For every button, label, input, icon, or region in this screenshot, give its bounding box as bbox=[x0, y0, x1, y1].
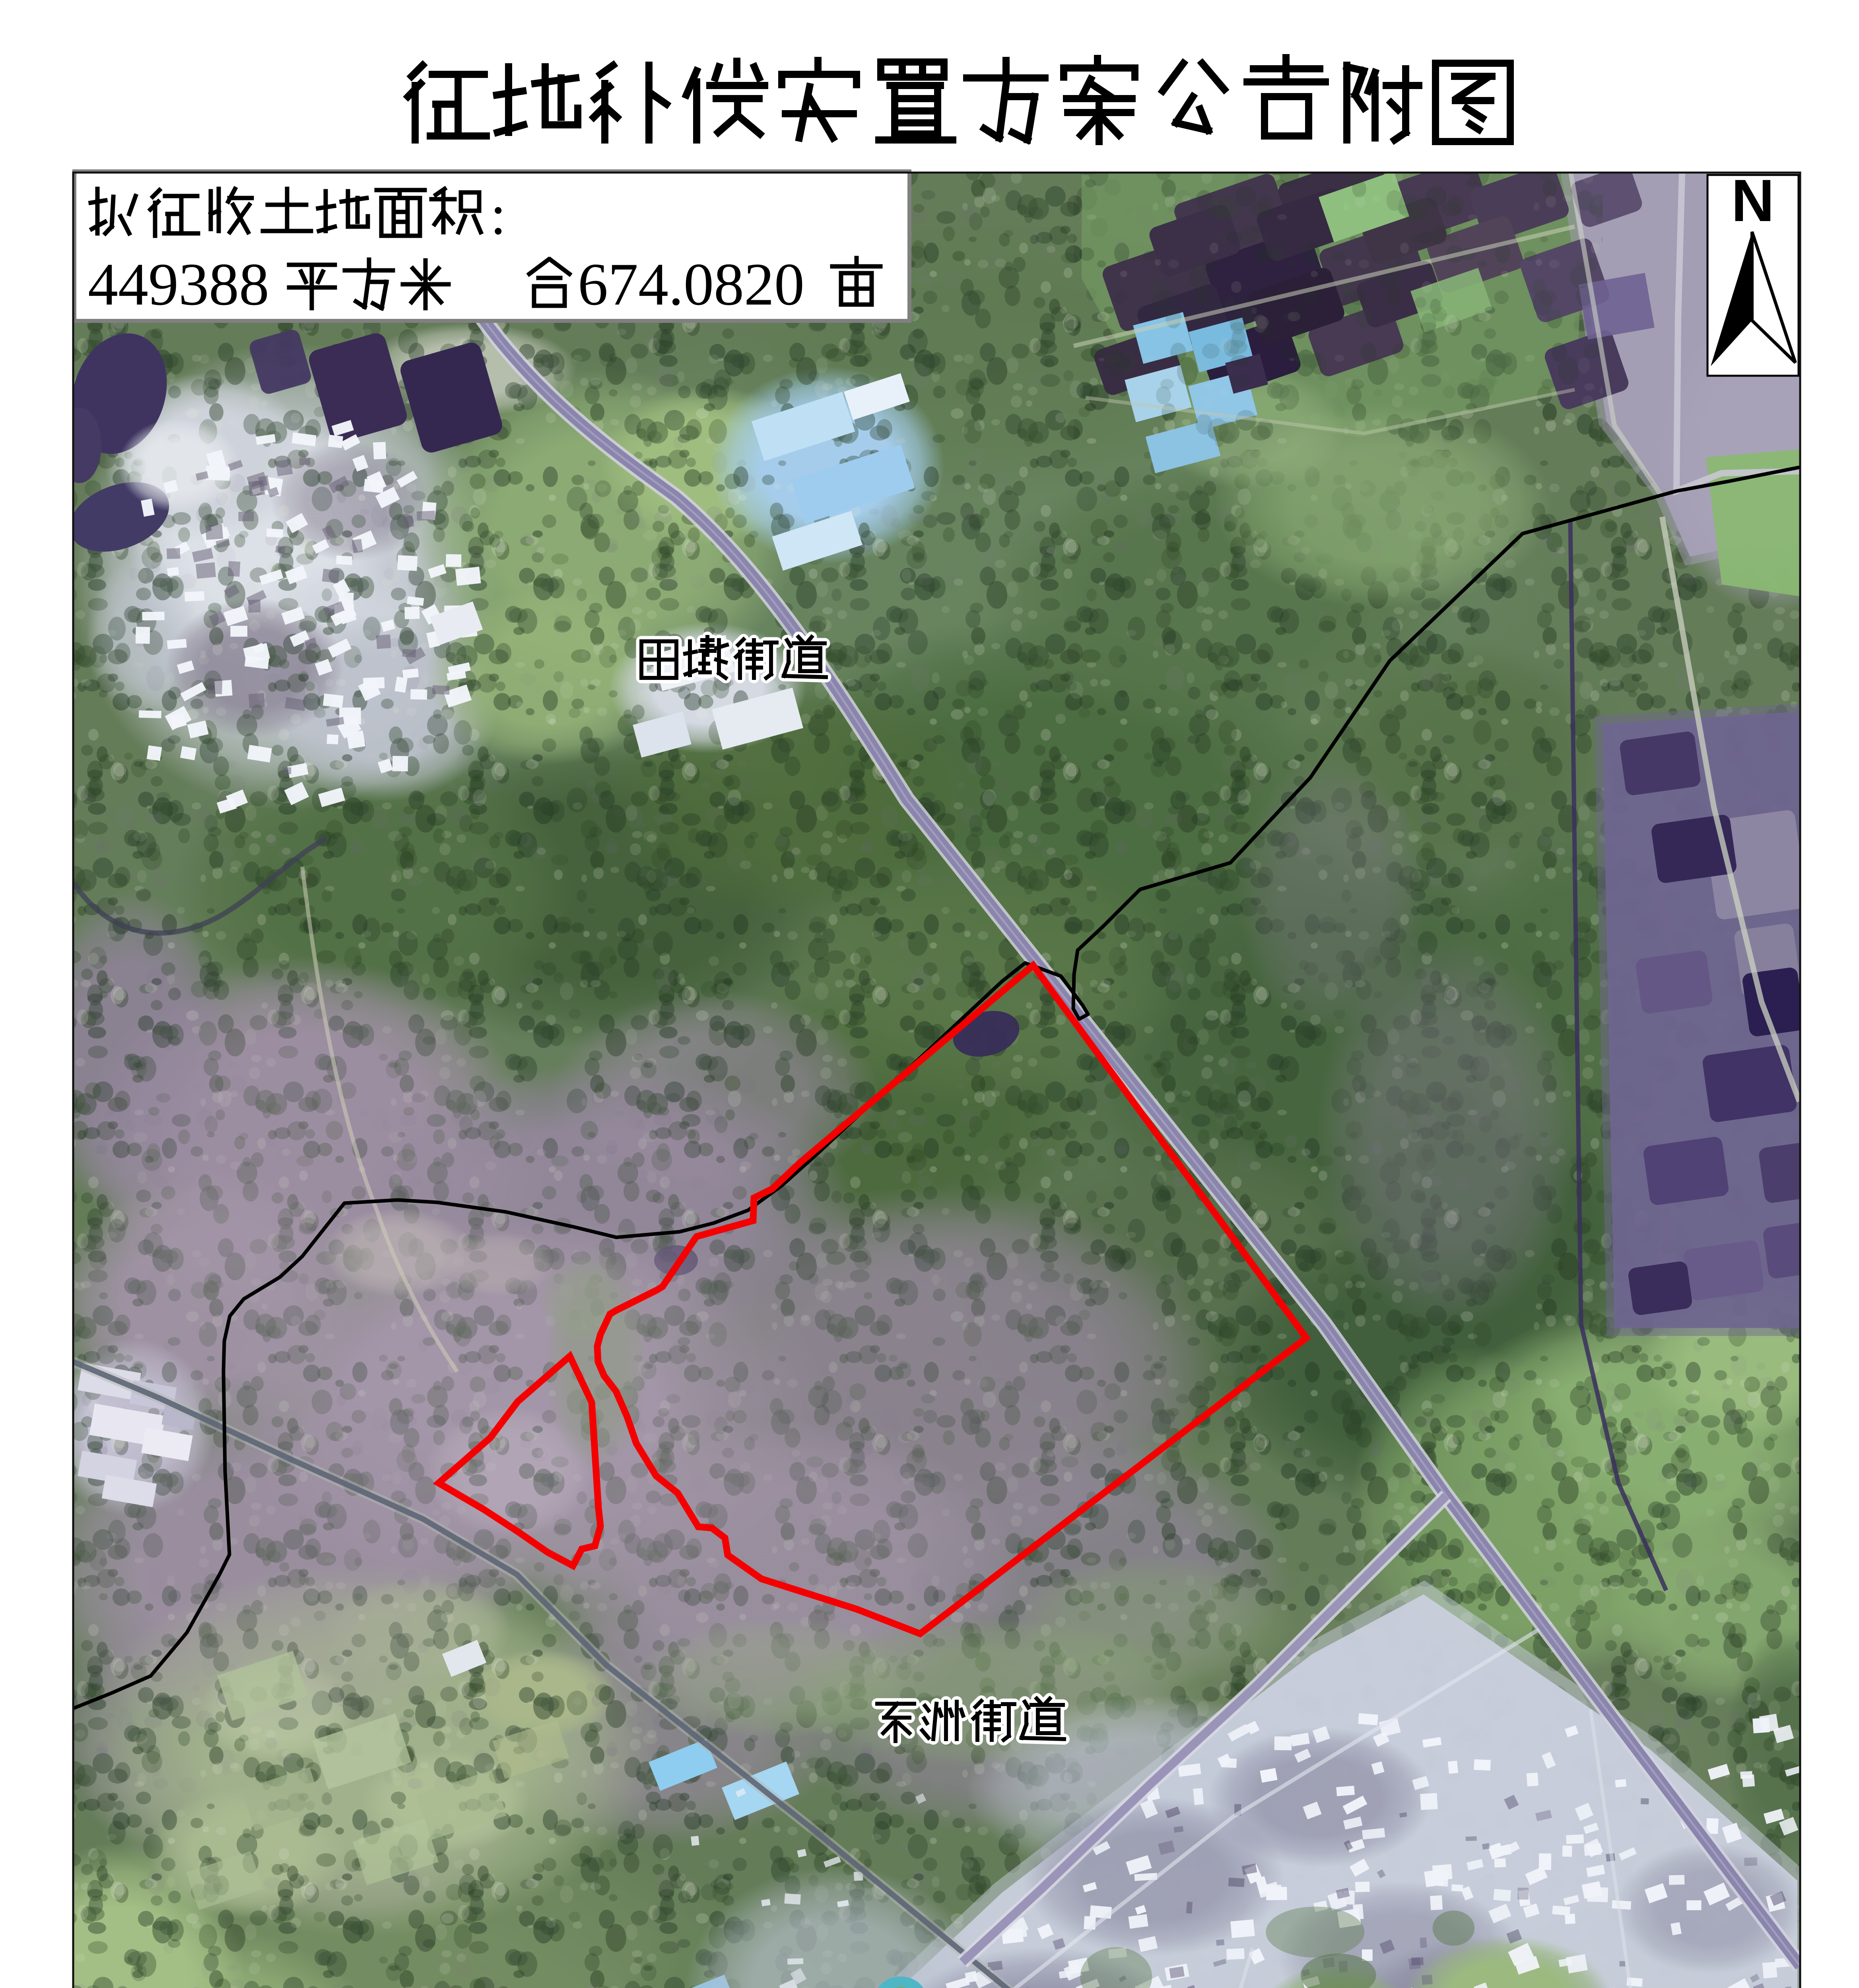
svg-text:N: N bbox=[1731, 167, 1774, 234]
svg-text::: : bbox=[490, 183, 506, 246]
svg-text:674.0820: 674.0820 bbox=[578, 251, 804, 318]
svg-text:449388: 449388 bbox=[88, 251, 269, 318]
